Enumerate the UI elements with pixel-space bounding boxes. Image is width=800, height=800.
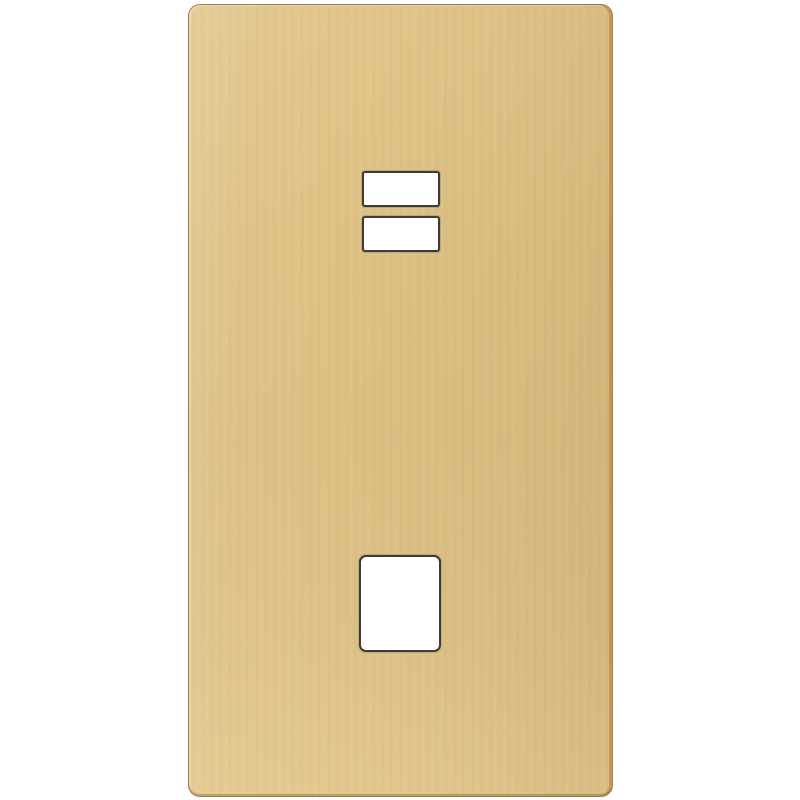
- brass-wall-plate: [188, 4, 613, 797]
- photo-background: [0, 0, 800, 800]
- rocker-opening-upper: [362, 171, 440, 207]
- rocker-opening-lower: [362, 216, 440, 252]
- module-opening: [359, 555, 441, 652]
